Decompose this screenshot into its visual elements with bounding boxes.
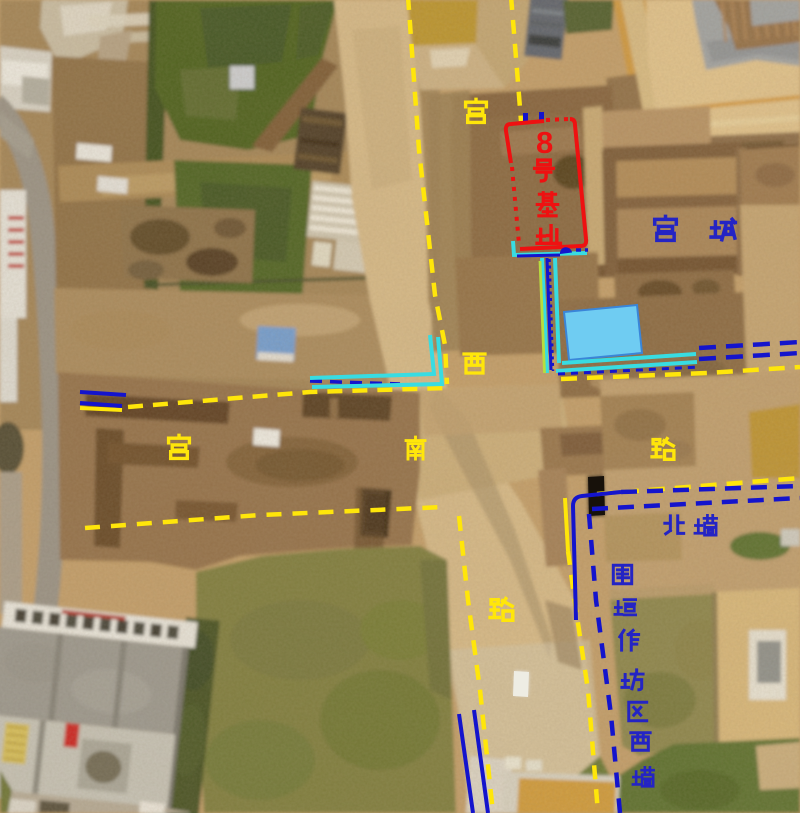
svg-text:8: 8	[536, 125, 553, 160]
